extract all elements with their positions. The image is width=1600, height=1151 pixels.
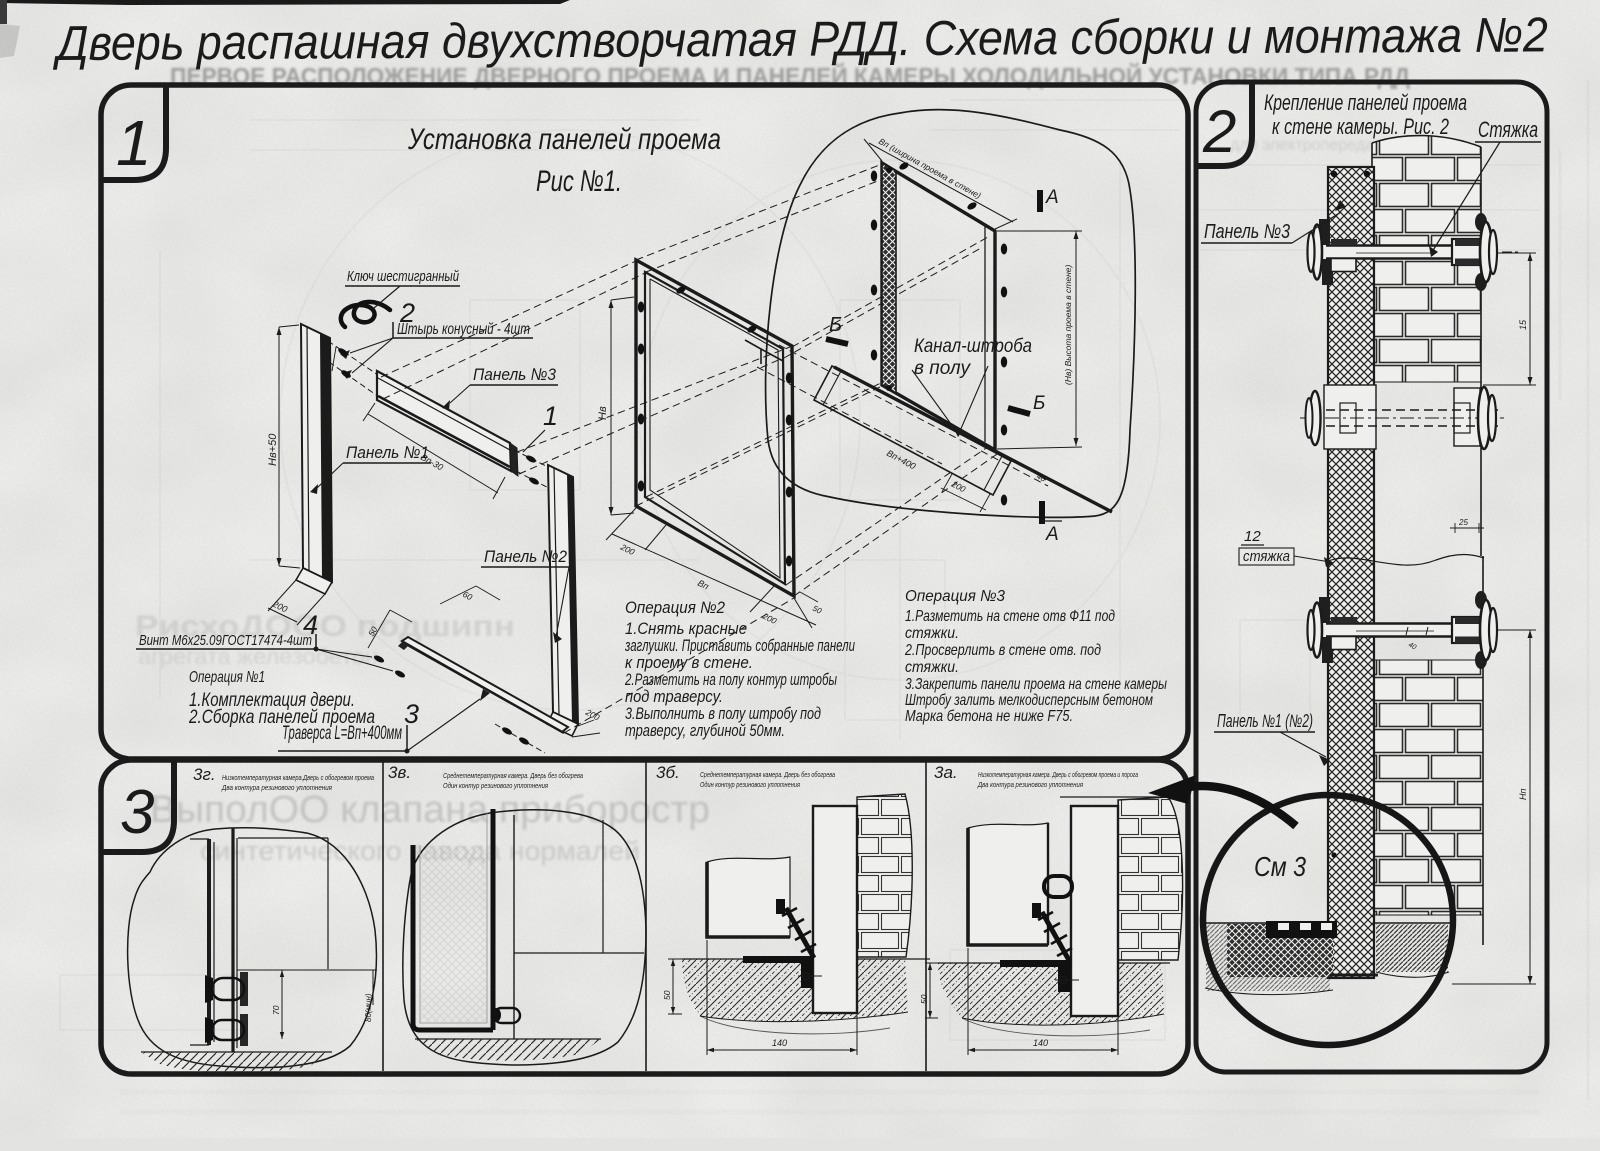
svg-text:Канал-штроба: Канал-штроба [914,336,1032,357]
svg-text:Винт М6х25.09ГОСТ17474-4шт: Винт М6х25.09ГОСТ17474-4шт [139,632,312,649]
svg-text:Крепление панелей проема: Крепление панелей проема [1264,90,1467,115]
svg-text:Панель №1 (№2): Панель №1 (№2) [1217,711,1313,731]
svg-text:Стяжка: Стяжка [1478,117,1538,142]
svg-text:(Нв) Высота проема в стене): (Нв) Высота проема в стене) [1063,264,1073,385]
svg-text:А: А [1045,187,1059,208]
svg-text:Панель №2: Панель №2 [484,547,567,566]
svg-text:1: 1 [543,401,558,431]
svg-text:2: 2 [1202,98,1236,165]
svg-text:3в.: 3в. [388,763,411,782]
svg-text:стяжка: стяжка [1243,548,1290,565]
svg-text:Один контур резинового уплотне: Один контур резинового уплотнения [700,780,800,789]
svg-text:Панель №3: Панель №3 [1204,221,1290,243]
svg-text:Рис №1.: Рис №1. [536,165,622,198]
svg-text:Низкотемпературная камера.Двер: Низкотемпературная камера.Дверь с обогре… [222,773,374,782]
svg-text:3.Выполнить в полу штробу под: 3.Выполнить в полу штробу под [625,705,821,723]
svg-text:Операция №2: Операция №2 [625,599,725,617]
svg-text:80(мин): 80(мин) [364,993,373,1022]
svg-text:15: 15 [1518,319,1528,330]
svg-text:3.Закрепить панели проема на с: 3.Закрепить панели проема на стене камер… [905,676,1167,693]
svg-text:Низкотемпературная камера. Две: Низкотемпературная камера. Дверь с обогр… [978,770,1138,779]
svg-text:Два контура резинового уплотне: Два контура резинового уплотнения [977,780,1083,789]
svg-text:50: 50 [662,990,672,1000]
svg-text:См 3: См 3 [1254,851,1306,882]
svg-text:Нв+50: Нв+50 [267,433,279,466]
svg-text:траверсу, глубиной 50мм.: траверсу, глубиной 50мм. [625,722,785,740]
svg-text:3: 3 [404,699,419,729]
svg-text:Среднетемпературная камера. Дв: Среднетемпературная камера. Дверь без об… [443,771,583,780]
svg-text:Среднетемпературная камера. Дв: Среднетемпературная камера. Дверь без об… [700,770,835,779]
svg-text:3г.: 3г. [193,765,216,784]
svg-text:Дверь распашная двухстворчатая: Дверь распашная двухстворчатая РДД. Схем… [52,8,1548,71]
svg-text:70: 70 [271,1005,281,1015]
svg-text:1: 1 [116,107,152,179]
svg-text:Панель №3: Панель №3 [473,365,556,384]
svg-text:Один контур резинового уплотне: Один контур резинового уплотнения [443,781,548,790]
svg-text:25: 25 [1458,518,1468,527]
svg-text:Траверса L=Вп+400мм: Траверса L=Вп+400мм [282,723,402,744]
svg-text:50: 50 [919,994,929,1004]
svg-text:стяжки.: стяжки. [905,659,959,676]
svg-text:140: 140 [1033,1038,1048,1048]
svg-text:Штробу залить мелкодисперсным: Штробу залить мелкодисперсным бетоном [905,692,1153,709]
svg-text:Б: Б [1033,393,1045,414]
svg-text:к проему в стене.: к проему в стене. [625,654,753,672]
svg-text:Операция №1: Операция №1 [189,669,265,686]
svg-text:1.Снять красные: 1.Снять красные [625,620,747,638]
svg-text:Нп: Нп [1518,789,1528,800]
svg-text:стяжки.: стяжки. [905,625,959,642]
svg-text:2.Просверлить в стене отв. по: 2.Просверлить в стене отв. под [904,642,1101,659]
svg-text:в полу: в полу [914,358,971,379]
svg-text:3а.: 3а. [934,763,958,782]
svg-text:Штырь конусный - 4шт: Штырь конусный - 4шт [397,321,530,338]
svg-text:2.Разметить на полу контур штр: 2.Разметить на полу контур штробы [624,671,837,689]
svg-text:3б.: 3б. [656,763,680,782]
svg-text:12: 12 [1244,528,1261,545]
svg-text:1.Разметить на стене отв Ф11 п: 1.Разметить на стене отв Ф11 под [905,608,1115,625]
svg-text:А: А [1045,524,1059,545]
svg-text:заглушки. Приставить собранные: заглушки. Приставить собранные панели [624,637,855,655]
svg-text:140: 140 [772,1038,787,1048]
svg-text:Операция №3: Операция №3 [905,588,1005,605]
svg-text:Нв: Нв [597,406,609,420]
svg-text:3: 3 [120,778,154,847]
svg-text:Ключ шестигранный: Ключ шестигранный [347,268,459,285]
svg-text:Установка панелей проема: Установка панелей проема [407,123,721,156]
svg-text:под траверсу.: под траверсу. [625,688,723,706]
svg-text:Два контура резинового уплотне: Два контура резинового уплотнения [221,783,332,792]
svg-text:Панель №1: Панель №1 [346,443,429,462]
svg-text:Марка бетона не ниже F75.: Марка бетона не ниже F75. [905,708,1073,725]
svg-text:Б: Б [829,314,842,336]
